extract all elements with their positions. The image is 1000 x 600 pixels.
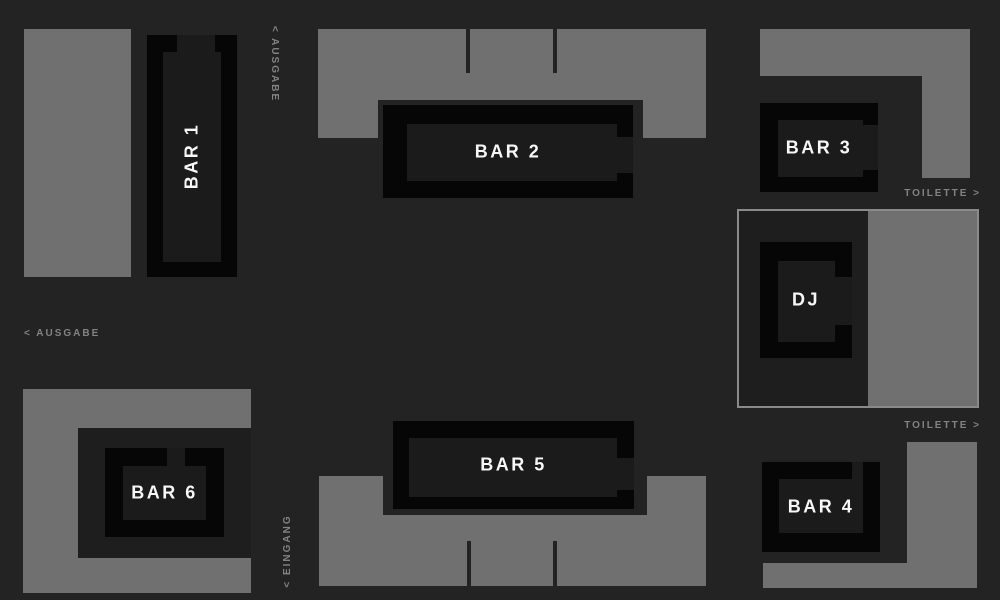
floor-area-top-center (318, 29, 706, 100)
bar-1-label: BAR 1 (182, 123, 203, 190)
bar-6-opening (167, 448, 185, 466)
dj-zone-floor (868, 211, 977, 406)
floor-area-top-center-left-wing (318, 100, 378, 138)
floor-area-top-right (760, 29, 970, 76)
dj-booth-opening (835, 277, 852, 325)
sign-toilet-lower: TOILETTE > (851, 419, 981, 433)
floor-area-bottom-left-top (23, 389, 251, 428)
floor-area-top-right-column (922, 76, 970, 178)
floor-area-bottom-center (319, 515, 706, 586)
bar-5: BAR 5 (393, 421, 634, 509)
sign-toilet-upper: TOILETTE > (851, 187, 981, 201)
wall-gap (466, 29, 470, 73)
sign-exit-top: < AUSGABE (267, 19, 281, 109)
wall-gap (553, 29, 557, 73)
bar-4-label: BAR 4 (788, 497, 855, 518)
wall-gap (467, 541, 471, 586)
bar-3: BAR 3 (760, 103, 878, 192)
bar-5-opening (617, 458, 634, 490)
sign-exit-left: < AUSGABE (24, 327, 100, 341)
bar-6-label: BAR 6 (131, 482, 198, 503)
bar-3-opening (863, 125, 878, 170)
floor-area-bottom-right (763, 563, 977, 588)
bar-3-label: BAR 3 (786, 137, 853, 158)
bar-2-opening (617, 137, 633, 173)
bar-2-label: BAR 2 (475, 141, 542, 162)
floor-area-bottom-left-bottom (78, 558, 251, 593)
bar-5-label: BAR 5 (480, 455, 547, 476)
bar-2: BAR 2 (383, 105, 633, 198)
floor-area-bottom-center-left-wing (319, 476, 383, 515)
dj-label: DJ (792, 290, 820, 311)
bar-1: BAR 1 (147, 35, 237, 277)
floor-area-top-center-right-wing (643, 100, 706, 138)
wall-gap (553, 541, 557, 586)
floor-area-bottom-center-right-wing (647, 476, 706, 515)
dj-booth: DJ (760, 242, 852, 358)
floor-area-top-left (24, 29, 131, 277)
bar-4-opening (852, 462, 863, 479)
bar-6: BAR 6 (105, 448, 224, 537)
club-floor-plan: BAR 1 BAR 2 BAR 3 DJ BAR 4 (0, 0, 1000, 600)
sign-entrance: < EINGANG (281, 506, 295, 596)
bar-1-opening (177, 35, 215, 52)
floor-area-bottom-left-column (23, 428, 78, 593)
bar-4: BAR 4 (762, 462, 880, 552)
